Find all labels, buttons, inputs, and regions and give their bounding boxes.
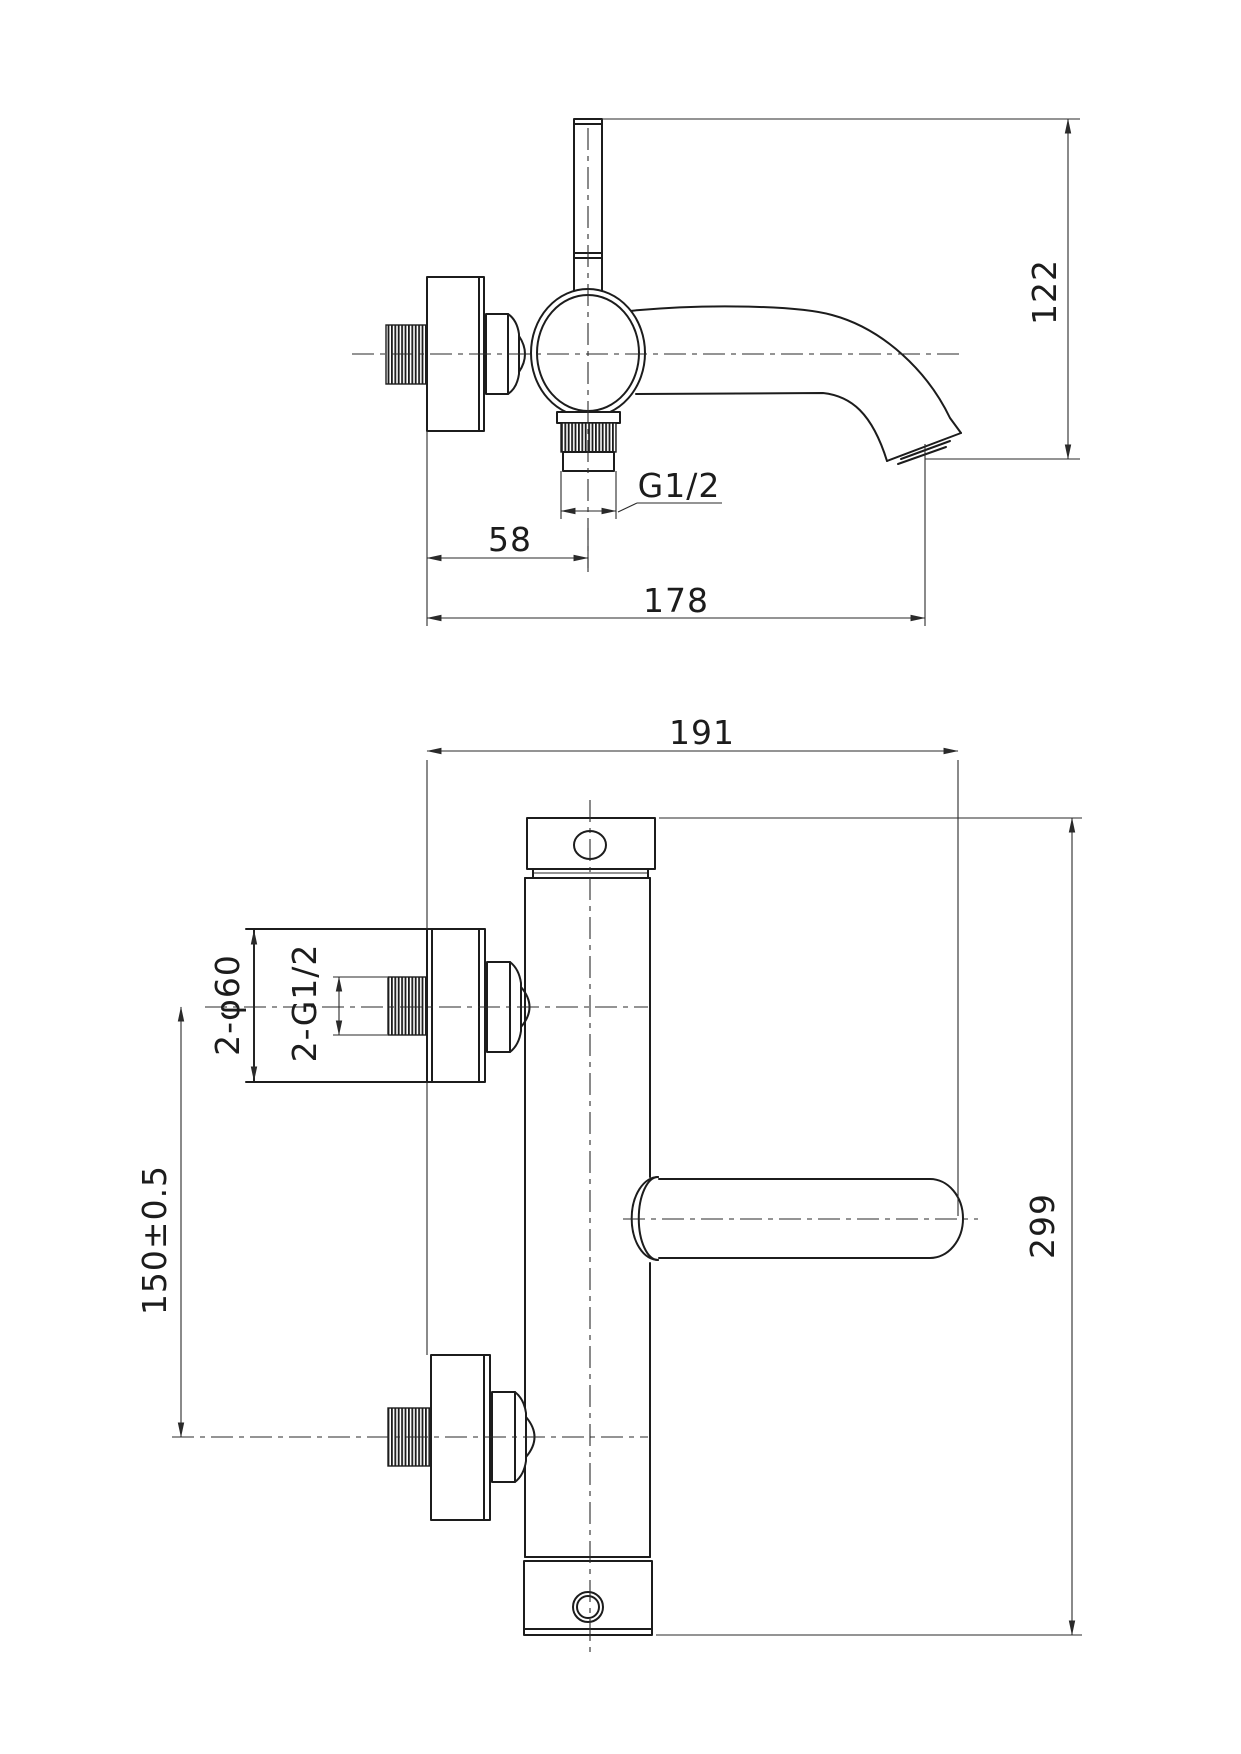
dimension-label-299: 299: [1023, 1193, 1062, 1259]
dimension-label-2g12: 2-G1/2: [285, 944, 324, 1063]
dimension-label-g12: G1/2: [638, 466, 721, 505]
dimension-label-2phi60: 2-φ60: [208, 954, 247, 1056]
dimension-label-58: 58: [488, 520, 532, 559]
dimension-label-191: 191: [669, 713, 735, 752]
top-cap: [527, 818, 655, 878]
drawing-sheet: 122 G1/2 58 178: [0, 0, 1241, 1754]
dimension-label-150: 150±0.5: [135, 1165, 174, 1315]
dimension-label-122: 122: [1025, 259, 1064, 325]
upper-inlet-thread: [388, 977, 427, 1035]
dimension-label-178: 178: [643, 581, 709, 620]
bottom-cap: [524, 1561, 652, 1635]
faucet-technical-drawing: 122 G1/2 58 178: [0, 0, 1241, 1754]
